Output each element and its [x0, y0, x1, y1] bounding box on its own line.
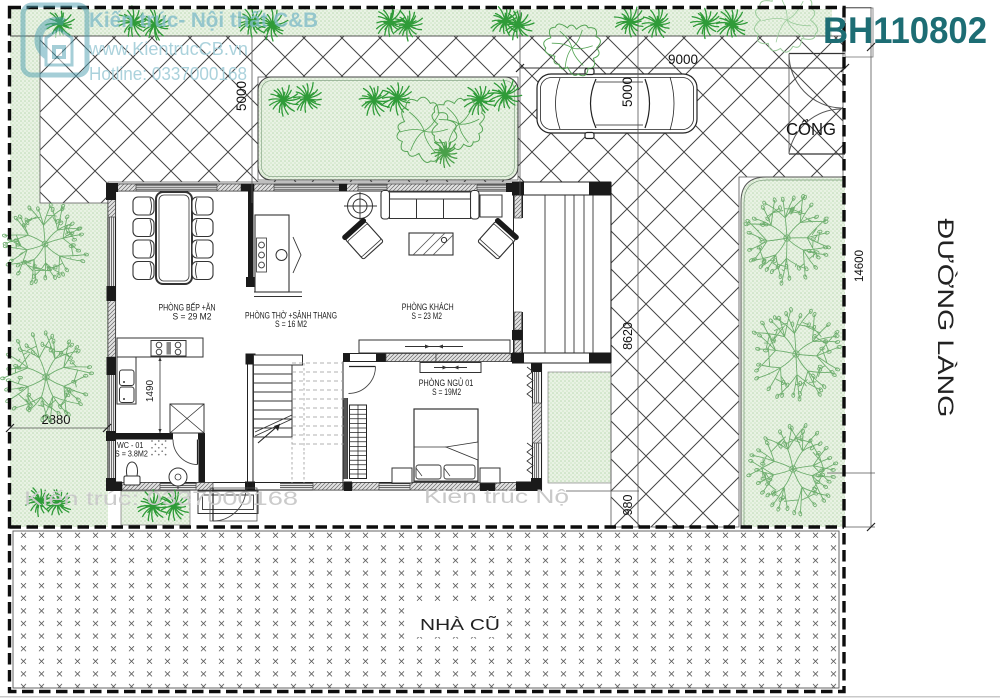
svg-text:8620: 8620 [621, 322, 635, 350]
svg-text:S = 23 M2: S = 23 M2 [411, 311, 442, 321]
svg-text:ĐƯỜNG LÀNG: ĐƯỜNG LÀNG [933, 219, 958, 418]
svg-text:S = 16 M2: S = 16 M2 [275, 319, 307, 329]
svg-text:14600: 14600 [854, 250, 866, 282]
svg-text:1490: 1490 [145, 379, 156, 402]
svg-text:S = 19M2: S = 19M2 [432, 387, 461, 397]
svg-text:Kiến trúc- Nội thất C&B: Kiến trúc- Nội thất C&B [89, 9, 318, 32]
svg-text:www.KientrucCB.vn: www.KientrucCB.vn [88, 39, 248, 59]
svg-text:NHÀ CŨ: NHÀ CŨ [420, 614, 500, 634]
svg-text:CỔNG: CỔNG [786, 118, 836, 139]
svg-text:Kiến trúc Nộ: Kiến trúc Nộ [424, 487, 569, 508]
svg-text:Hotline: 0337000168: Hotline: 0337000168 [89, 64, 247, 84]
svg-text:5000: 5000 [234, 81, 249, 111]
svg-text:BH110802: BH110802 [823, 10, 987, 51]
svg-text:S = 29 M2: S = 29 M2 [173, 312, 212, 322]
svg-text:9000: 9000 [668, 52, 698, 67]
svg-text:980: 980 [621, 495, 635, 516]
svg-text:Kiến trúc: 0337000168: Kiến trúc: 0337000168 [24, 489, 298, 510]
svg-text:S = 3.8M2: S = 3.8M2 [115, 450, 148, 459]
svg-text:5000: 5000 [620, 77, 635, 107]
